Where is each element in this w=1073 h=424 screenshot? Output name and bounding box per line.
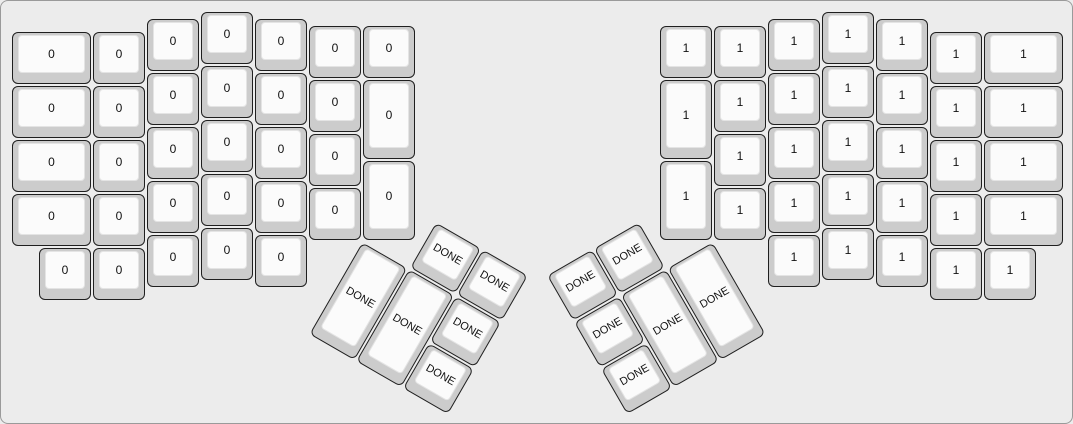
key-label: DONE xyxy=(618,362,651,387)
key-label: 0 xyxy=(278,143,285,155)
keycap-top: 1 xyxy=(936,251,976,289)
key-label: 0 xyxy=(170,35,177,47)
right_main-key-21[interactable]: 1 xyxy=(930,86,982,138)
keycap-top: 0 xyxy=(315,137,355,175)
keycap-top: 1 xyxy=(936,143,976,181)
left_main-key-11[interactable]: 0 xyxy=(147,127,199,179)
keycap-top: 1 xyxy=(720,83,760,121)
key-label: 1 xyxy=(683,42,690,54)
keycap-top: 0 xyxy=(18,143,85,181)
right_main-key-1[interactable]: 1 xyxy=(660,26,712,78)
right_main-key-30[interactable]: 1 xyxy=(876,235,928,287)
left_main-key-31[interactable]: 0 xyxy=(201,228,253,280)
left_main-key-20[interactable]: 0 xyxy=(255,181,307,233)
key-label: 0 xyxy=(278,251,285,263)
left_main-key-29[interactable]: 0 xyxy=(93,248,145,300)
key-label: 1 xyxy=(791,143,798,155)
keycap-top: 0 xyxy=(261,130,301,168)
keycap-top: 0 xyxy=(315,83,355,121)
key-label: 1 xyxy=(845,136,852,148)
right_main-key-5[interactable]: 1 xyxy=(714,80,766,132)
left_main-key-6[interactable]: 0 xyxy=(93,86,145,138)
key-label: 0 xyxy=(386,190,393,202)
keycap-top: 1 xyxy=(828,69,868,107)
keycap-top: 1 xyxy=(774,130,814,168)
key-label: 1 xyxy=(737,42,744,54)
keycap-top: 1 xyxy=(828,231,868,269)
keycap-top: 1 xyxy=(882,238,922,276)
keycap-top: 1 xyxy=(828,123,868,161)
keycap-top: 0 xyxy=(153,184,193,222)
left_main-key-4[interactable]: 0 xyxy=(12,194,91,246)
right_main-key-14[interactable]: 1 xyxy=(822,120,874,172)
right_main-key-11[interactable]: 1 xyxy=(768,181,820,233)
keycap-top: 1 xyxy=(936,35,976,73)
left_main-key-13[interactable]: 0 xyxy=(201,12,253,64)
right_main-key-16[interactable]: 1 xyxy=(876,19,928,71)
keycap-top: 0 xyxy=(99,197,139,235)
keycap-top: 0 xyxy=(18,35,85,73)
left_main-key-5[interactable]: 0 xyxy=(93,32,145,84)
left_main-key-26[interactable]: 0 xyxy=(363,80,415,159)
keycap-top: 0 xyxy=(153,22,193,60)
keycap-top: 0 xyxy=(315,191,355,229)
key-label: 0 xyxy=(332,42,339,54)
key-label: 1 xyxy=(791,251,798,263)
keycap-top: 1 xyxy=(990,143,1057,181)
right_main-key-3[interactable]: 1 xyxy=(660,161,712,240)
key-label: 0 xyxy=(116,156,123,168)
keycap-top: 1 xyxy=(774,184,814,222)
key-label: 1 xyxy=(791,35,798,47)
left_main-key-32[interactable]: 0 xyxy=(255,235,307,287)
key-label: 0 xyxy=(48,156,55,168)
key-label: DONE xyxy=(344,285,377,310)
key-label: 0 xyxy=(170,143,177,155)
key-label: 1 xyxy=(953,264,960,276)
key-label: DONE xyxy=(564,268,597,293)
right_main-key-29[interactable]: 1 xyxy=(822,228,874,280)
key-label: 0 xyxy=(116,264,123,276)
left_main-key-30[interactable]: 0 xyxy=(147,235,199,287)
right_main-key-4[interactable]: 1 xyxy=(714,26,766,78)
key-label: 1 xyxy=(1007,264,1014,276)
key-label: 0 xyxy=(278,35,285,47)
key-label: 0 xyxy=(224,28,231,40)
keycap-top: 0 xyxy=(261,238,301,276)
right_main-key-24[interactable]: 1 xyxy=(984,32,1063,84)
keycap-top: 0 xyxy=(369,29,409,67)
key-label: 0 xyxy=(116,48,123,60)
key-label: 1 xyxy=(683,190,690,202)
key-label: 0 xyxy=(224,244,231,256)
keycap-top: 1 xyxy=(882,184,922,222)
keycap-top: 0 xyxy=(315,29,355,67)
key-label: 1 xyxy=(845,244,852,256)
left_main-key-8[interactable]: 0 xyxy=(93,194,145,246)
right_main-key-6[interactable]: 1 xyxy=(714,134,766,186)
keycap-top: 1 xyxy=(774,238,814,276)
left_main-key-16[interactable]: 0 xyxy=(201,174,253,226)
right_main-key-15[interactable]: 1 xyxy=(822,174,874,226)
keycap-top: 0 xyxy=(369,83,409,148)
left_main-key-7[interactable]: 0 xyxy=(93,140,145,192)
keycap-top: 1 xyxy=(882,130,922,168)
key-label: DONE xyxy=(431,241,464,266)
right_main-key-19[interactable]: 1 xyxy=(876,181,928,233)
key-label: 0 xyxy=(170,197,177,209)
keycap-top: 0 xyxy=(18,89,85,127)
key-label: 1 xyxy=(845,82,852,94)
right_main-key-8[interactable]: 1 xyxy=(768,19,820,71)
right_main-key-12[interactable]: 1 xyxy=(822,12,874,64)
key-label: 1 xyxy=(953,156,960,168)
keycap-top: 0 xyxy=(207,15,247,53)
left_main-key-24[interactable]: 0 xyxy=(309,188,361,240)
key-label: 0 xyxy=(332,150,339,162)
keycap-top: 1 xyxy=(936,89,976,127)
keycap-top: 1 xyxy=(666,29,706,67)
key-label: 1 xyxy=(953,210,960,222)
key-label: 0 xyxy=(170,251,177,263)
keycap-top: 1 xyxy=(774,76,814,114)
keycap-top: 1 xyxy=(990,197,1057,235)
right_main-key-2[interactable]: 1 xyxy=(660,80,712,159)
keycap-top: DONE xyxy=(601,228,655,281)
keycap-top: 1 xyxy=(990,89,1057,127)
keycap-top: 1 xyxy=(882,22,922,60)
key-label: DONE xyxy=(611,241,644,266)
right_main-key-13[interactable]: 1 xyxy=(822,66,874,118)
keycap-top: DONE xyxy=(421,228,475,281)
key-label: 0 xyxy=(48,102,55,114)
key-label: 0 xyxy=(278,89,285,101)
right_main-key-7[interactable]: 1 xyxy=(714,188,766,240)
keycap-top: 1 xyxy=(882,76,922,114)
keycap-top: DONE xyxy=(554,255,608,308)
left_main-key-14[interactable]: 0 xyxy=(201,66,253,118)
keycap-top: 0 xyxy=(99,35,139,73)
key-label: 1 xyxy=(953,48,960,60)
keycap-top: 0 xyxy=(207,69,247,107)
keycap-top: 0 xyxy=(261,76,301,114)
right_main-key-18[interactable]: 1 xyxy=(876,127,928,179)
keycap-top: 1 xyxy=(720,29,760,67)
keycap-top: 1 xyxy=(828,15,868,53)
key-label: 0 xyxy=(224,82,231,94)
key-label: 1 xyxy=(791,89,798,101)
right_main-key-20[interactable]: 1 xyxy=(930,32,982,84)
keycap-top: 0 xyxy=(207,231,247,269)
keycap-top: 1 xyxy=(720,191,760,229)
key-label: DONE xyxy=(391,312,424,337)
key-label: 0 xyxy=(386,109,393,121)
left_main-key-25[interactable]: 0 xyxy=(363,26,415,78)
keycap-top: 1 xyxy=(666,83,706,148)
left_main-key-19[interactable]: 0 xyxy=(255,127,307,179)
key-label: DONE xyxy=(451,315,484,340)
keycap-top: 0 xyxy=(18,197,85,235)
keycap-top: 0 xyxy=(99,143,139,181)
key-label: 1 xyxy=(845,190,852,202)
left_main-key-17[interactable]: 0 xyxy=(255,19,307,71)
key-label: 1 xyxy=(1020,48,1027,60)
key-label: 1 xyxy=(953,102,960,114)
key-label: 1 xyxy=(1020,102,1027,114)
key-label: DONE xyxy=(651,312,684,337)
left_main-key-15[interactable]: 0 xyxy=(201,120,253,172)
keyboard-canvas: 00000000000000000000000000000000 1111111… xyxy=(0,0,1073,424)
left_main-key-22[interactable]: 0 xyxy=(309,80,361,132)
keycap-top: 1 xyxy=(774,22,814,60)
keycap-top: 0 xyxy=(153,76,193,114)
key-label: 0 xyxy=(278,197,285,209)
key-label: 1 xyxy=(1020,210,1027,222)
right_main-key-10[interactable]: 1 xyxy=(768,127,820,179)
left_main-key-9[interactable]: 0 xyxy=(147,19,199,71)
right_main-key-17[interactable]: 1 xyxy=(876,73,928,125)
keycap-top: 1 xyxy=(666,164,706,229)
keycap-top: DONE xyxy=(468,255,522,308)
left_main-key-21[interactable]: 0 xyxy=(309,26,361,78)
keycap-top: 0 xyxy=(207,177,247,215)
key-label: 1 xyxy=(845,28,852,40)
key-label: DONE xyxy=(478,268,511,293)
key-label: DONE xyxy=(591,315,624,340)
left_main-key-23[interactable]: 0 xyxy=(309,134,361,186)
keycap-top: 1 xyxy=(990,251,1030,289)
keycap-top: 0 xyxy=(99,251,139,289)
key-label: DONE xyxy=(698,285,731,310)
key-label: 0 xyxy=(116,102,123,114)
key-label: 1 xyxy=(899,89,906,101)
key-label: 1 xyxy=(737,96,744,108)
key-label: 0 xyxy=(62,264,69,276)
right_main-key-26[interactable]: 1 xyxy=(984,140,1063,192)
key-label: 1 xyxy=(899,251,906,263)
key-label: 1 xyxy=(683,109,690,121)
key-label: 0 xyxy=(170,89,177,101)
keycap-top: 0 xyxy=(99,89,139,127)
keycap-top: 0 xyxy=(261,22,301,60)
right_main-key-32[interactable]: 1 xyxy=(984,248,1036,300)
key-label: 1 xyxy=(737,204,744,216)
key-label: 0 xyxy=(48,48,55,60)
keycap-top: 0 xyxy=(261,184,301,222)
keycap-top: 1 xyxy=(936,197,976,235)
key-label: DONE xyxy=(424,362,457,387)
key-label: 0 xyxy=(48,210,55,222)
key-label: 0 xyxy=(224,136,231,148)
left_main-key-18[interactable]: 0 xyxy=(255,73,307,125)
key-label: 0 xyxy=(332,96,339,108)
key-label: 1 xyxy=(899,143,906,155)
key-label: 1 xyxy=(899,197,906,209)
right_main-key-28[interactable]: 1 xyxy=(768,235,820,287)
right_main-key-25[interactable]: 1 xyxy=(984,86,1063,138)
keycap-top: 1 xyxy=(720,137,760,175)
keycap-top: 0 xyxy=(153,130,193,168)
right_main-key-9[interactable]: 1 xyxy=(768,73,820,125)
left_main-key-12[interactable]: 0 xyxy=(147,181,199,233)
right_main-key-27[interactable]: 1 xyxy=(984,194,1063,246)
keycap-top: 0 xyxy=(153,238,193,276)
keycap-top: 0 xyxy=(45,251,85,289)
keycap-top: 1 xyxy=(828,177,868,215)
key-label: 1 xyxy=(737,150,744,162)
keycap-top: 1 xyxy=(990,35,1057,73)
left_main-key-27[interactable]: 0 xyxy=(363,161,415,240)
left_main-key-1[interactable]: 0 xyxy=(12,32,91,84)
keycap-top: 0 xyxy=(369,164,409,229)
right_main-key-22[interactable]: 1 xyxy=(930,140,982,192)
left_main-key-3[interactable]: 0 xyxy=(12,140,91,192)
keycap-top: 0 xyxy=(207,123,247,161)
left_main-key-10[interactable]: 0 xyxy=(147,73,199,125)
key-label: 1 xyxy=(899,35,906,47)
left_main-key-2[interactable]: 0 xyxy=(12,86,91,138)
key-label: 0 xyxy=(386,42,393,54)
key-label: 0 xyxy=(224,190,231,202)
right_main-key-23[interactable]: 1 xyxy=(930,194,982,246)
key-label: 1 xyxy=(791,197,798,209)
key-label: 0 xyxy=(332,204,339,216)
left_main-key-28[interactable]: 0 xyxy=(39,248,91,300)
key-label: 1 xyxy=(1020,156,1027,168)
key-label: 0 xyxy=(116,210,123,222)
right_main-key-31[interactable]: 1 xyxy=(930,248,982,300)
